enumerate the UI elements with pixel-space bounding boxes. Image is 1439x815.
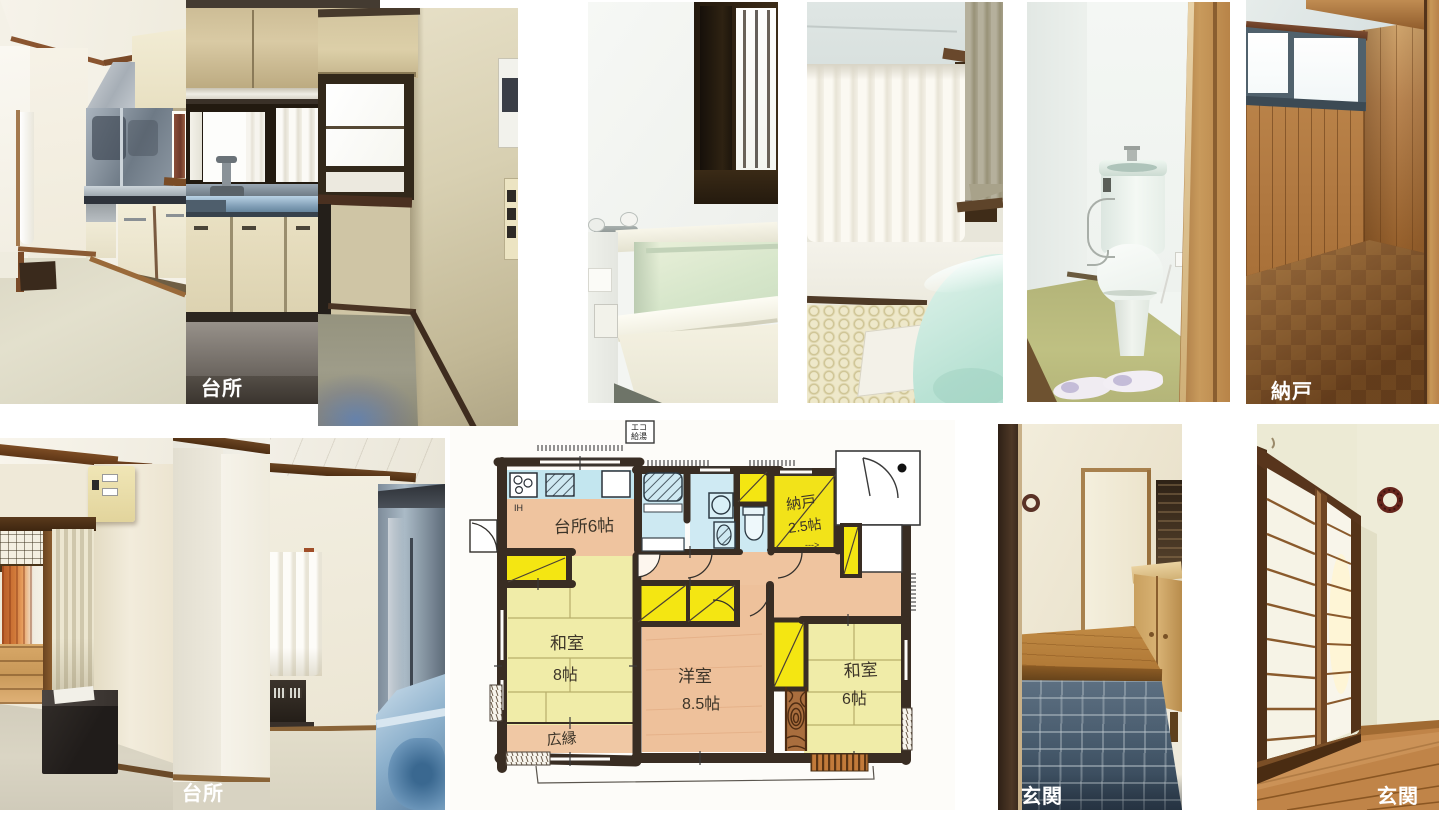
svg-text:和室: 和室 (843, 660, 878, 681)
svg-text:給湯: 給湯 (631, 431, 647, 441)
svg-text:和室: 和室 (550, 634, 584, 653)
svg-text:8.5帖: 8.5帖 (682, 695, 720, 713)
svg-text:--->: ---> (805, 540, 819, 550)
svg-text:エコ: エコ (631, 423, 647, 432)
svg-text:8帖: 8帖 (553, 666, 578, 684)
svg-text:IH: IH (514, 503, 523, 513)
svg-text:広縁: 広縁 (546, 730, 577, 749)
svg-text:洋室: 洋室 (678, 667, 712, 686)
svg-text:6帖: 6帖 (842, 690, 867, 708)
svg-text:台所6帖: 台所6帖 (553, 516, 614, 537)
